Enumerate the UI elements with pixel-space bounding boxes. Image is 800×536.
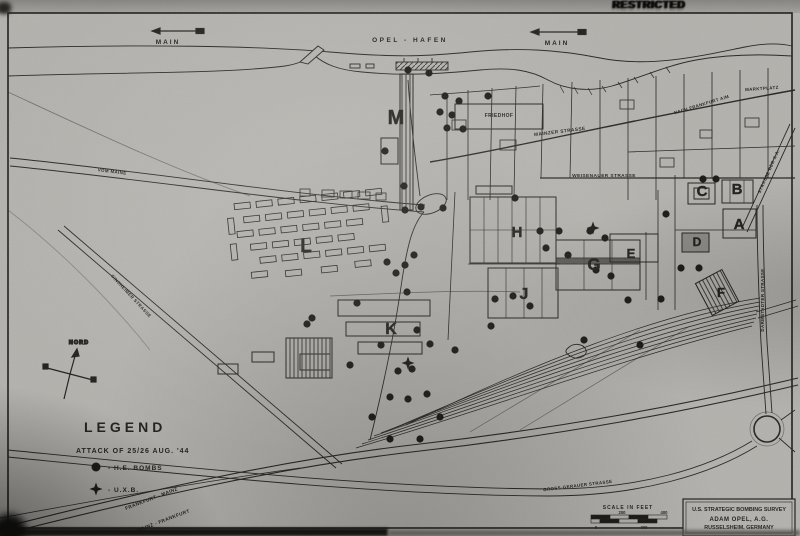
scan-edge-artifact (388, 530, 800, 536)
scan-edge-artifact (0, 528, 388, 536)
scan-corner-blot (0, 2, 11, 14)
bombing-survey-map: ABCDEFGHJKLM MAINMAINOPEL - HAFENFRIEDHO… (0, 0, 800, 536)
film-grain-overlay (0, 0, 800, 536)
restricted-stamp: RESTRICTED (612, 0, 733, 13)
scanned-map-page: ABCDEFGHJKLM MAINMAINOPEL - HAFENFRIEDHO… (0, 0, 800, 536)
